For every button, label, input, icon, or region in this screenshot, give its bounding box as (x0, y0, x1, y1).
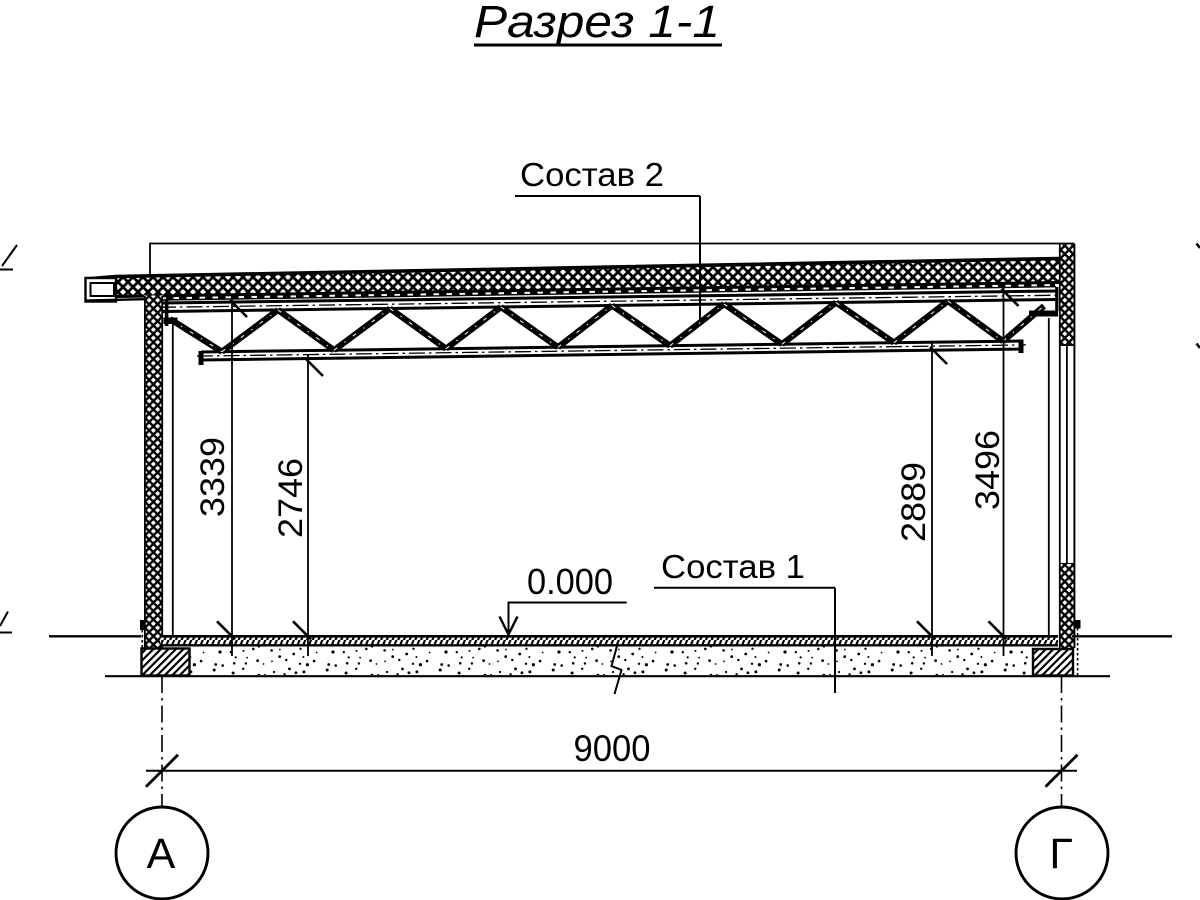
svg-text:2746: 2746 (272, 458, 310, 538)
svg-text:9000: 9000 (574, 727, 651, 769)
svg-text:Разрез 1-1: Разрез 1-1 (474, 0, 720, 47)
svg-text:Состав 1: Состав 1 (661, 548, 805, 585)
svg-text:3496: 3496 (969, 430, 1007, 510)
svg-text:А: А (147, 830, 176, 878)
svg-text:0.000: 0.000 (527, 561, 613, 602)
svg-text:Состав 2: Состав 2 (520, 156, 664, 193)
svg-text:3339: 3339 (194, 437, 232, 517)
svg-text:2889: 2889 (895, 462, 933, 542)
svg-text:Г: Г (1049, 830, 1072, 878)
